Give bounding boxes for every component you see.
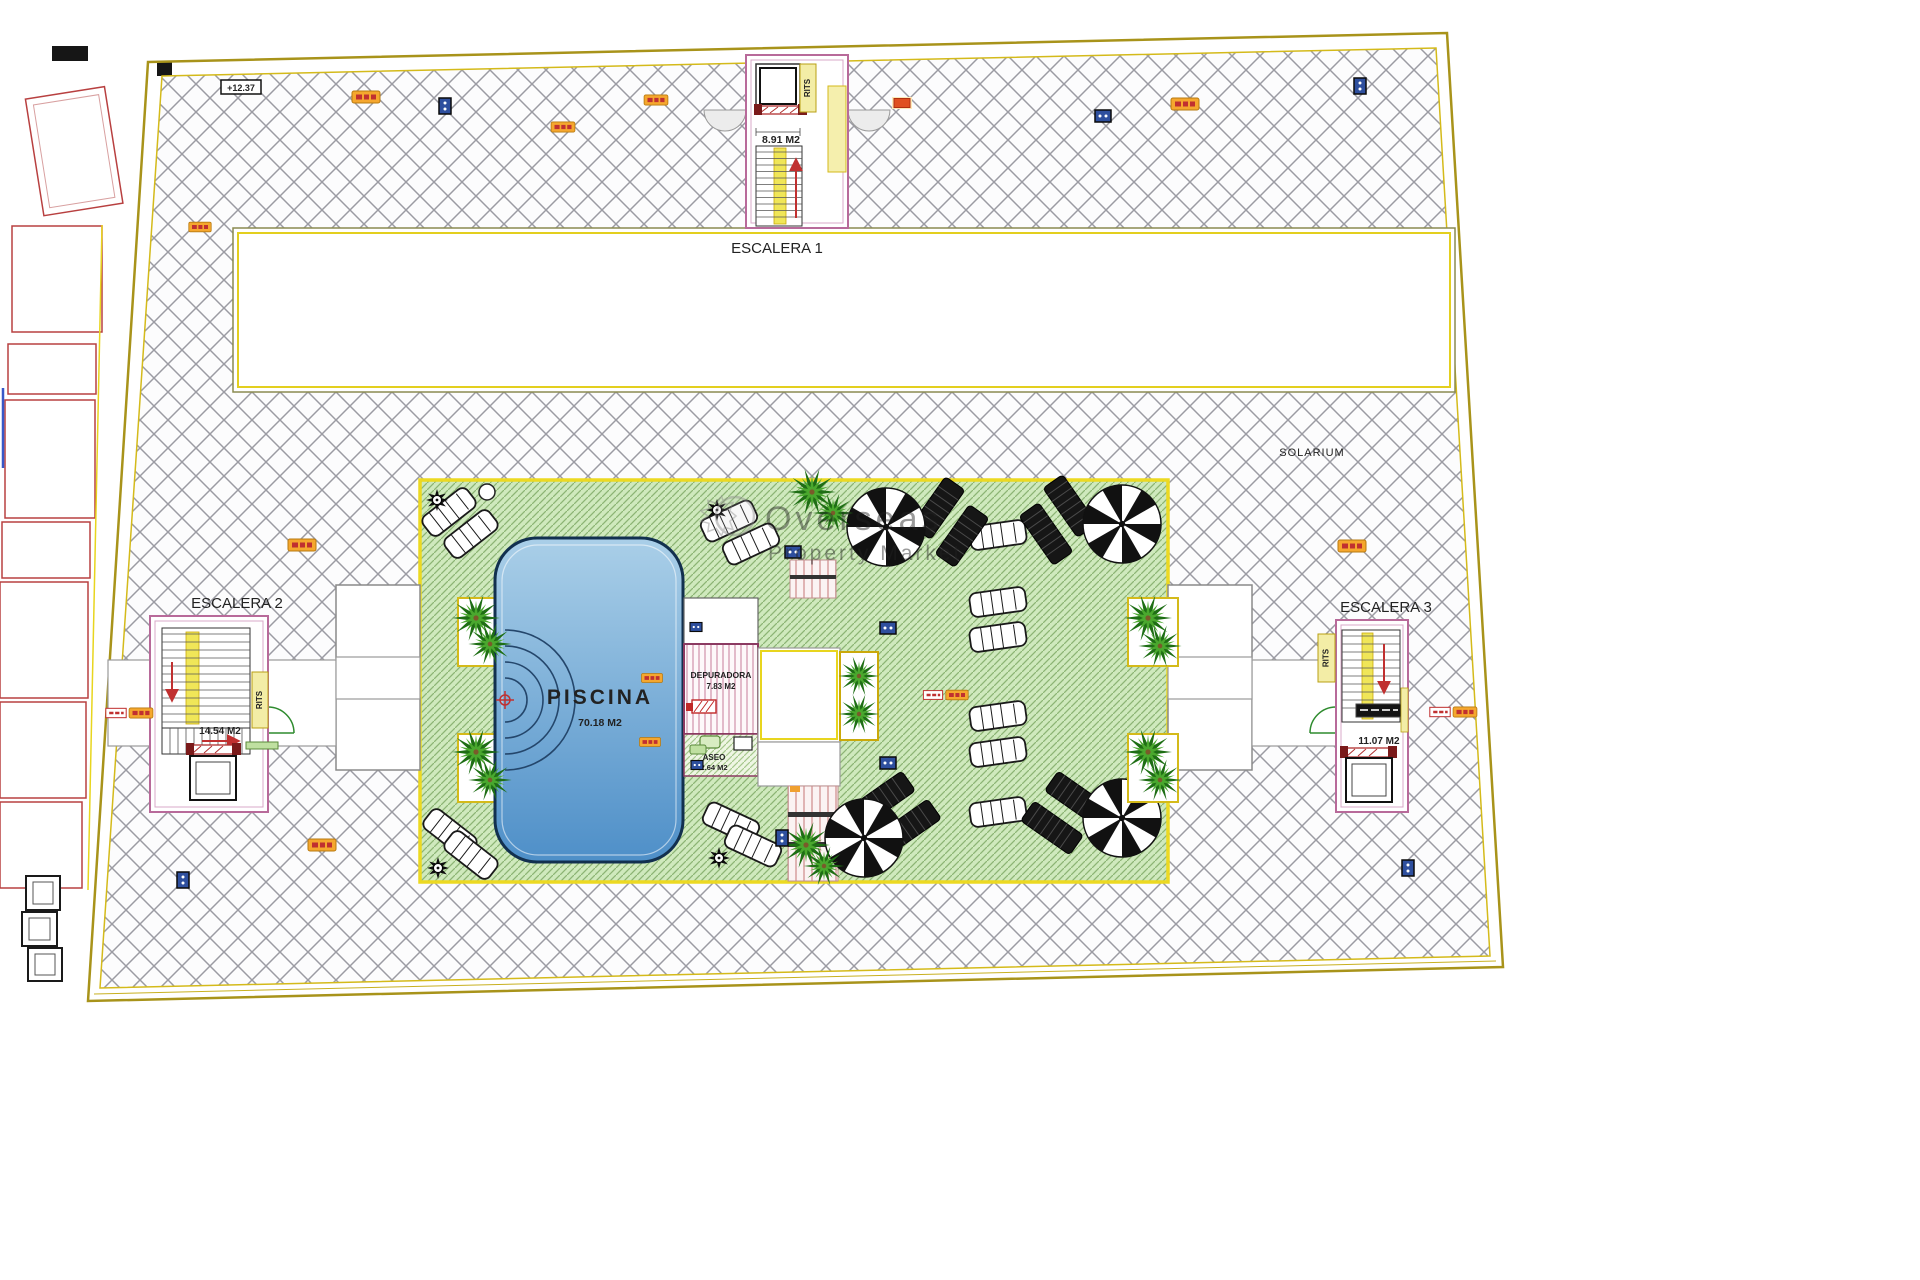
service-marker: [642, 674, 663, 683]
service-marker: [1338, 540, 1366, 552]
lounge-room-lower: [758, 742, 840, 786]
pool-area: 70.18 M2: [578, 717, 622, 729]
service-marker: [288, 539, 316, 551]
light-marker: [690, 623, 702, 632]
palm-planter: [839, 652, 880, 740]
aseo-area: 2.64 M2: [700, 763, 727, 772]
north-bar: [52, 46, 88, 61]
service-marker: [308, 839, 336, 851]
aseo-title: ASEO: [703, 753, 726, 762]
left-balcony-strip: [0, 87, 123, 888]
light-marker: [691, 761, 703, 770]
escalera3-area: 11.07 M2: [1358, 736, 1400, 747]
depuradora-title: DEPURADORA: [691, 670, 752, 680]
light-marker: [177, 872, 189, 888]
room-tag: [1356, 704, 1402, 717]
service-marker: [892, 97, 912, 109]
pool-title: PISCINA: [547, 686, 653, 709]
watermark-line1: Overseas: [765, 500, 943, 538]
left-bottom-cabins: [22, 876, 62, 981]
light-marker: [880, 622, 896, 634]
light-marker: [1402, 860, 1414, 876]
pergola-top: [790, 560, 836, 598]
service-marker: [551, 122, 575, 132]
escalera1-title: ESCALERA 1: [731, 240, 823, 257]
service-marker: [352, 91, 380, 103]
level-badge-text: +12.37: [227, 83, 255, 93]
escalera2-core: RITS 14.54 M2: [150, 616, 278, 812]
light-marker: [439, 98, 451, 114]
light-marker: [1354, 78, 1366, 94]
service-marker: [189, 222, 211, 232]
watermark-line2: Property Market: [768, 542, 962, 565]
service-marker-pair: [1430, 707, 1477, 717]
light-marker: [880, 757, 896, 769]
service-marker-pair: [106, 708, 153, 718]
service-marker: [1171, 98, 1199, 110]
escalera1-area: 8.91 M2: [762, 134, 800, 146]
rits-duct: [828, 86, 846, 172]
elevator: [1340, 746, 1397, 802]
lounge-room: [758, 648, 840, 742]
parasol: [1083, 485, 1161, 563]
service-marker: [644, 95, 668, 105]
plant-top-room: [684, 598, 758, 644]
rits-label-2: RITS: [255, 690, 264, 709]
service-marker-pair: [923, 690, 968, 700]
sink: [734, 737, 752, 750]
floor-plan-page: RITS 8.91 M2 ESCALERA 1 PISCINA 70.18 M2…: [0, 0, 1920, 1280]
side-table: [479, 484, 495, 500]
stair-flight: [756, 146, 802, 226]
elevator: [754, 64, 807, 115]
planter-strip: [246, 742, 278, 749]
solarium-label: SOLARIUM: [1279, 447, 1344, 459]
service-marker: [640, 738, 661, 747]
service-marker: [690, 745, 706, 754]
escalera2-area: 14.54 M2: [199, 726, 241, 737]
light-marker: [776, 830, 788, 846]
escalera2-title: ESCALERA 2: [191, 595, 283, 612]
light-marker: [1095, 110, 1111, 122]
building-void: [233, 228, 1455, 392]
level-badge: +12.37: [221, 80, 261, 94]
elevator: [186, 743, 241, 800]
depuradora-area: 7.83 M2: [707, 682, 736, 691]
corner-block: [157, 62, 172, 76]
rits-label-3: RITS: [1322, 648, 1331, 667]
depuradora-room: DEPURADORA 7.83 M2: [684, 644, 758, 734]
floor-plan: RITS 8.91 M2 ESCALERA 1 PISCINA 70.18 M2…: [0, 0, 1920, 1280]
rits-label-1: RITS: [803, 78, 812, 97]
escalera3-title: ESCALERA 3: [1340, 599, 1432, 616]
